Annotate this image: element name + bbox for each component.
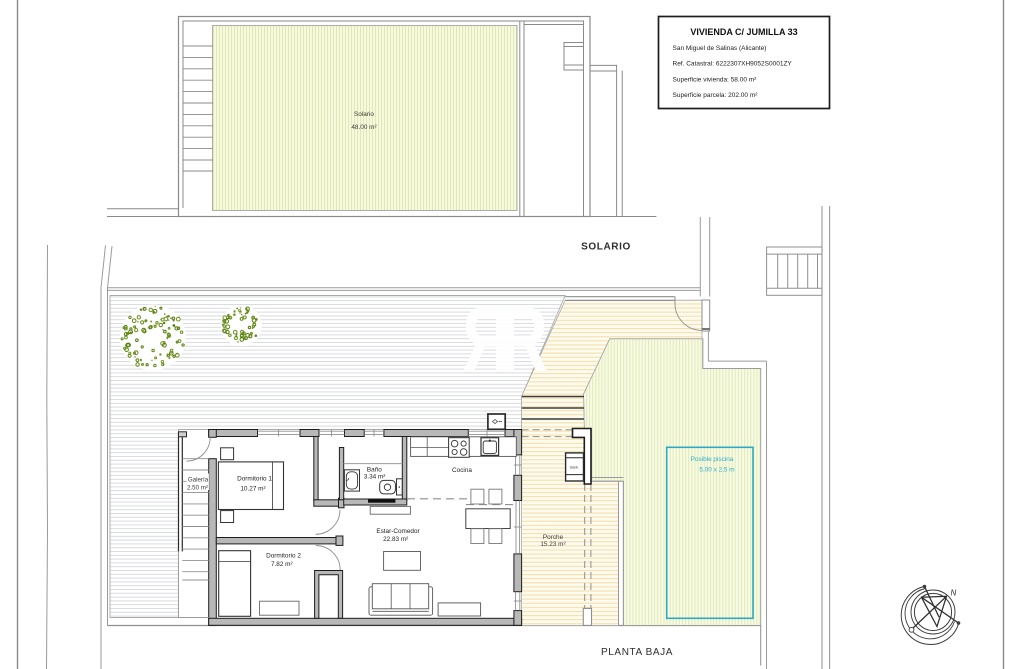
svg-text:SOLARIO: SOLARIO: [581, 242, 631, 253]
svg-text:Posible piscina: Posible piscina: [691, 456, 734, 463]
svg-text:VIVIENDA C/ JUMILLA 33: VIVIENDA C/ JUMILLA 33: [690, 27, 797, 37]
svg-text:R: R: [500, 287, 548, 390]
svg-text:2.50 m²: 2.50 m²: [187, 485, 208, 492]
svg-text:3.34 m²: 3.34 m²: [364, 474, 386, 481]
svg-text:10.27 m²: 10.27 m²: [240, 485, 265, 492]
svg-text:5,00 x 2,5 m: 5,00 x 2,5 m: [699, 467, 734, 474]
svg-text:Galería: Galería: [188, 476, 209, 483]
svg-text:Dormitorio 1: Dormitorio 1: [237, 476, 272, 483]
svg-text:Superficie parcela: 202.00 m²: Superficie parcela: 202.00 m²: [673, 92, 759, 99]
svg-text:Ref. Catastral: 6222307XH9052S: Ref. Catastral: 6222307XH9052S0001ZY: [673, 61, 793, 68]
svg-text:N: N: [951, 589, 957, 598]
svg-text:Dormitorio 2: Dormitorio 2: [266, 553, 301, 560]
svg-text:Superficie vivienda: 58.00 m²: Superficie vivienda: 58.00 m²: [673, 76, 758, 83]
svg-text:7.82 m²: 7.82 m²: [271, 561, 293, 568]
svg-text:San Miguel de Salinas (Alicant: San Miguel de Salinas (Alicante): [673, 45, 767, 52]
svg-text:Estar-Comedor: Estar-Comedor: [376, 528, 420, 535]
svg-text:Barb.: Barb.: [570, 465, 579, 469]
svg-text:22.83 m²: 22.83 m²: [383, 536, 408, 543]
svg-text:PLANTA BAJA: PLANTA BAJA: [601, 647, 673, 658]
svg-text:15.23 m²: 15.23 m²: [540, 541, 565, 548]
svg-text:Solario: Solario: [354, 111, 374, 118]
svg-text:Porche: Porche: [543, 534, 564, 541]
svg-text:Cocina: Cocina: [452, 467, 472, 474]
svg-text:48.00 m²: 48.00 m²: [351, 124, 376, 131]
svg-text:Baño: Baño: [367, 467, 382, 474]
